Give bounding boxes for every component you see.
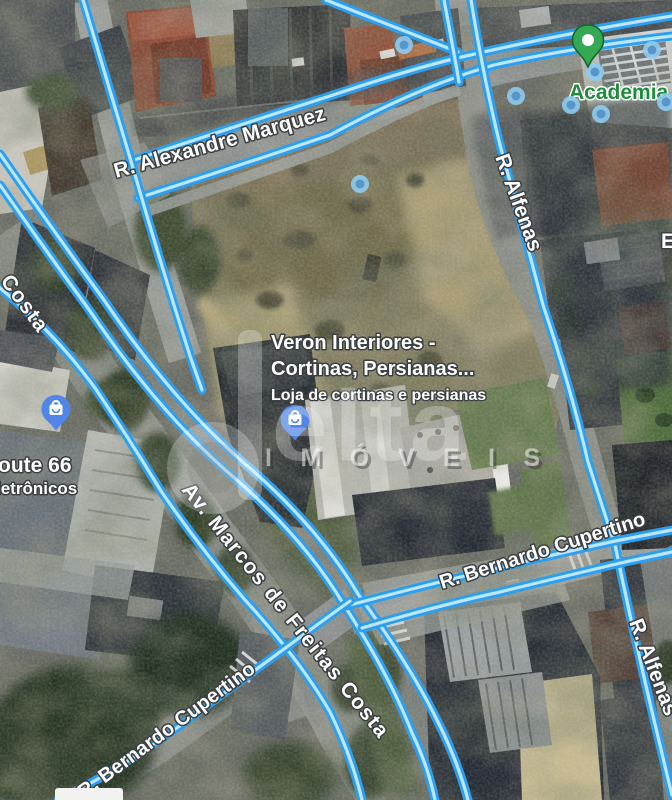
svg-text:letrônicos: letrônicos xyxy=(0,479,77,498)
svg-text:Academia: Academia xyxy=(569,81,669,104)
svg-text:E: E xyxy=(661,230,672,253)
svg-text:IMÓVEIS: IMÓVEIS xyxy=(265,442,569,472)
svg-text:Veron Interiores -: Veron Interiores - xyxy=(271,332,436,354)
svg-text:oute 66: oute 66 xyxy=(0,454,72,477)
